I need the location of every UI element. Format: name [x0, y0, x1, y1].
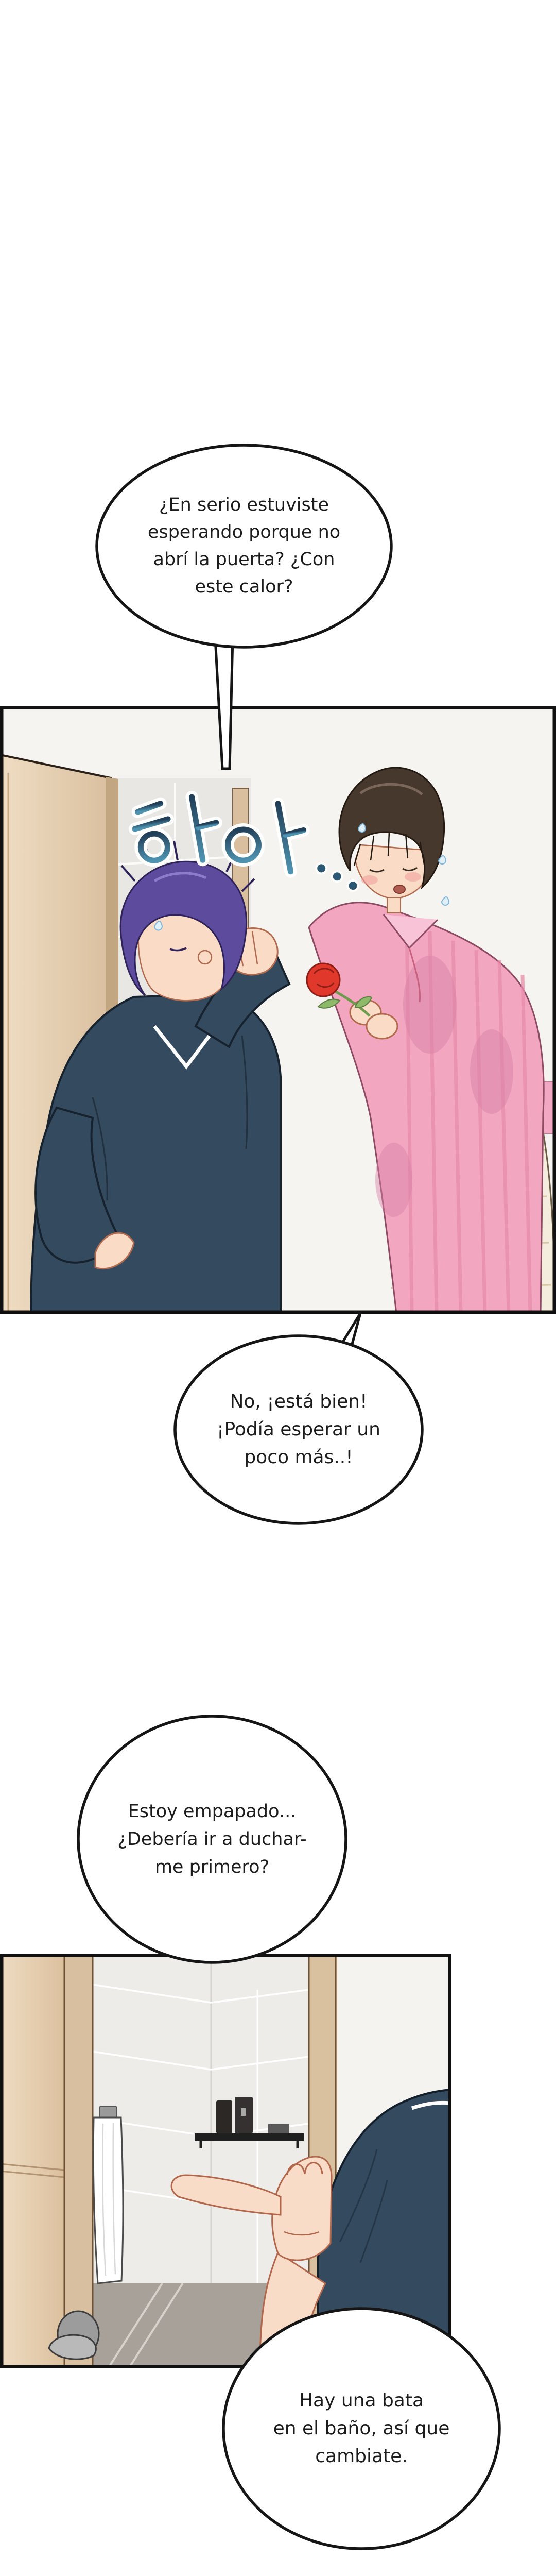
door	[0, 1954, 99, 2368]
speech-bubble-1: ¿En serio estuviste esperando porque no …	[94, 442, 394, 650]
speech-bubble-4: Hay una bata en el baño, así que cambiat…	[220, 2306, 502, 2552]
webtoon-page: ¿En serio estuviste esperando porque no …	[0, 0, 556, 2576]
bubble-text: Hay una bata en el baño, así que cambiat…	[220, 2306, 502, 2552]
hand	[367, 1014, 397, 1039]
mouth	[394, 885, 405, 893]
bubble-text: No, ¡está bien! ¡Podía esperar un poco m…	[172, 1333, 425, 1527]
towel	[93, 2106, 123, 2283]
bubble-text: Estoy empapado... ¿Debería ir a duchar- …	[75, 1713, 349, 1965]
panel-hallway	[0, 706, 556, 1314]
speech-bubble-3: Estoy empapado... ¿Debería ir a duchar- …	[75, 1713, 349, 1965]
speech-bubble-2: No, ¡está bien! ¡Podía esperar un poco m…	[172, 1333, 425, 1527]
bubble-text: ¿En serio estuviste esperando porque no …	[94, 442, 394, 650]
